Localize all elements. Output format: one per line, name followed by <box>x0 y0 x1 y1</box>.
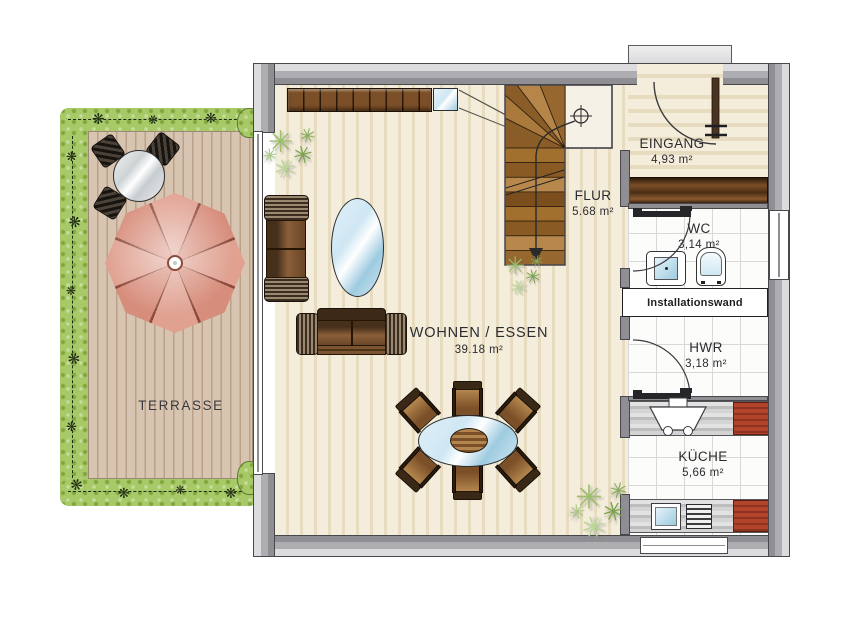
kitchen-counter-bottom <box>628 499 768 533</box>
sofa-front <box>296 308 407 356</box>
hedge-plant-icon: ❋ <box>225 486 237 500</box>
kitchen-cabinet-red <box>733 500 769 532</box>
sideboard <box>287 88 432 112</box>
room-label-terrasse: TERRASSE <box>138 397 224 415</box>
room-label-flur: FLUR 5.68 m² <box>572 187 614 219</box>
toilet-icon <box>696 247 726 286</box>
room-label-hwr: HWR 3,18 m² <box>685 339 727 371</box>
installation-wall: Installationswand <box>622 288 768 317</box>
dining-chair <box>452 464 483 500</box>
dining-chair <box>452 381 483 417</box>
interior-wall <box>620 396 630 438</box>
wall-wc-top <box>628 203 768 209</box>
floorplan-canvas: ❋ ❋ ❋ ❋ ❋ ❋ ❋ ❋ ❋ ❋ ❋ ❋ <box>0 0 858 620</box>
terrace-table <box>113 150 165 202</box>
terrace-window <box>253 131 263 475</box>
wall-right <box>768 63 790 557</box>
room-label-wohnen-essen: WOHNEN / ESSEN 39.18 m² <box>410 324 549 358</box>
hedge-left <box>60 108 88 506</box>
room-label-kueche: KÜCHE 5,66 m² <box>678 448 727 480</box>
hedge-plant-icon: ❋ <box>118 486 130 500</box>
hedge-plant-icon: ❋ <box>92 112 105 127</box>
room-label-wc: WC 3,14 m² <box>678 220 720 252</box>
stove-icon <box>686 504 712 529</box>
room-label-eingang: EINGANG 4,93 m² <box>639 135 704 167</box>
sofa-left <box>263 195 310 302</box>
wardrobe <box>628 177 768 204</box>
interior-wall <box>620 150 630 207</box>
table-centerpiece <box>450 428 488 453</box>
hedge-plant-icon: ❋ <box>205 111 217 125</box>
installation-wall-label: Installationswand <box>647 297 743 309</box>
sink-icon <box>651 503 681 530</box>
wall-left-top <box>253 63 275 133</box>
parasol-center <box>167 255 183 271</box>
wall-kitchen-top <box>628 396 768 401</box>
coffee-table <box>331 198 384 297</box>
glass-shelf <box>433 88 458 111</box>
kitchen-counter-top <box>628 401 768 436</box>
wall-left-bottom <box>253 473 275 557</box>
interior-wall <box>620 316 630 340</box>
wc-window <box>769 210 789 280</box>
interior-wall <box>620 268 630 288</box>
hedge-plant-icon: ❋ <box>66 285 76 297</box>
hedge-plant-icon: ❋ <box>66 150 77 163</box>
hedge-plant-icon: ❋ <box>66 420 77 433</box>
entrance-door-opening <box>637 64 723 85</box>
washbasin-icon <box>646 251 686 286</box>
kitchen-window <box>640 537 728 554</box>
kitchen-cabinet-red <box>733 402 769 435</box>
